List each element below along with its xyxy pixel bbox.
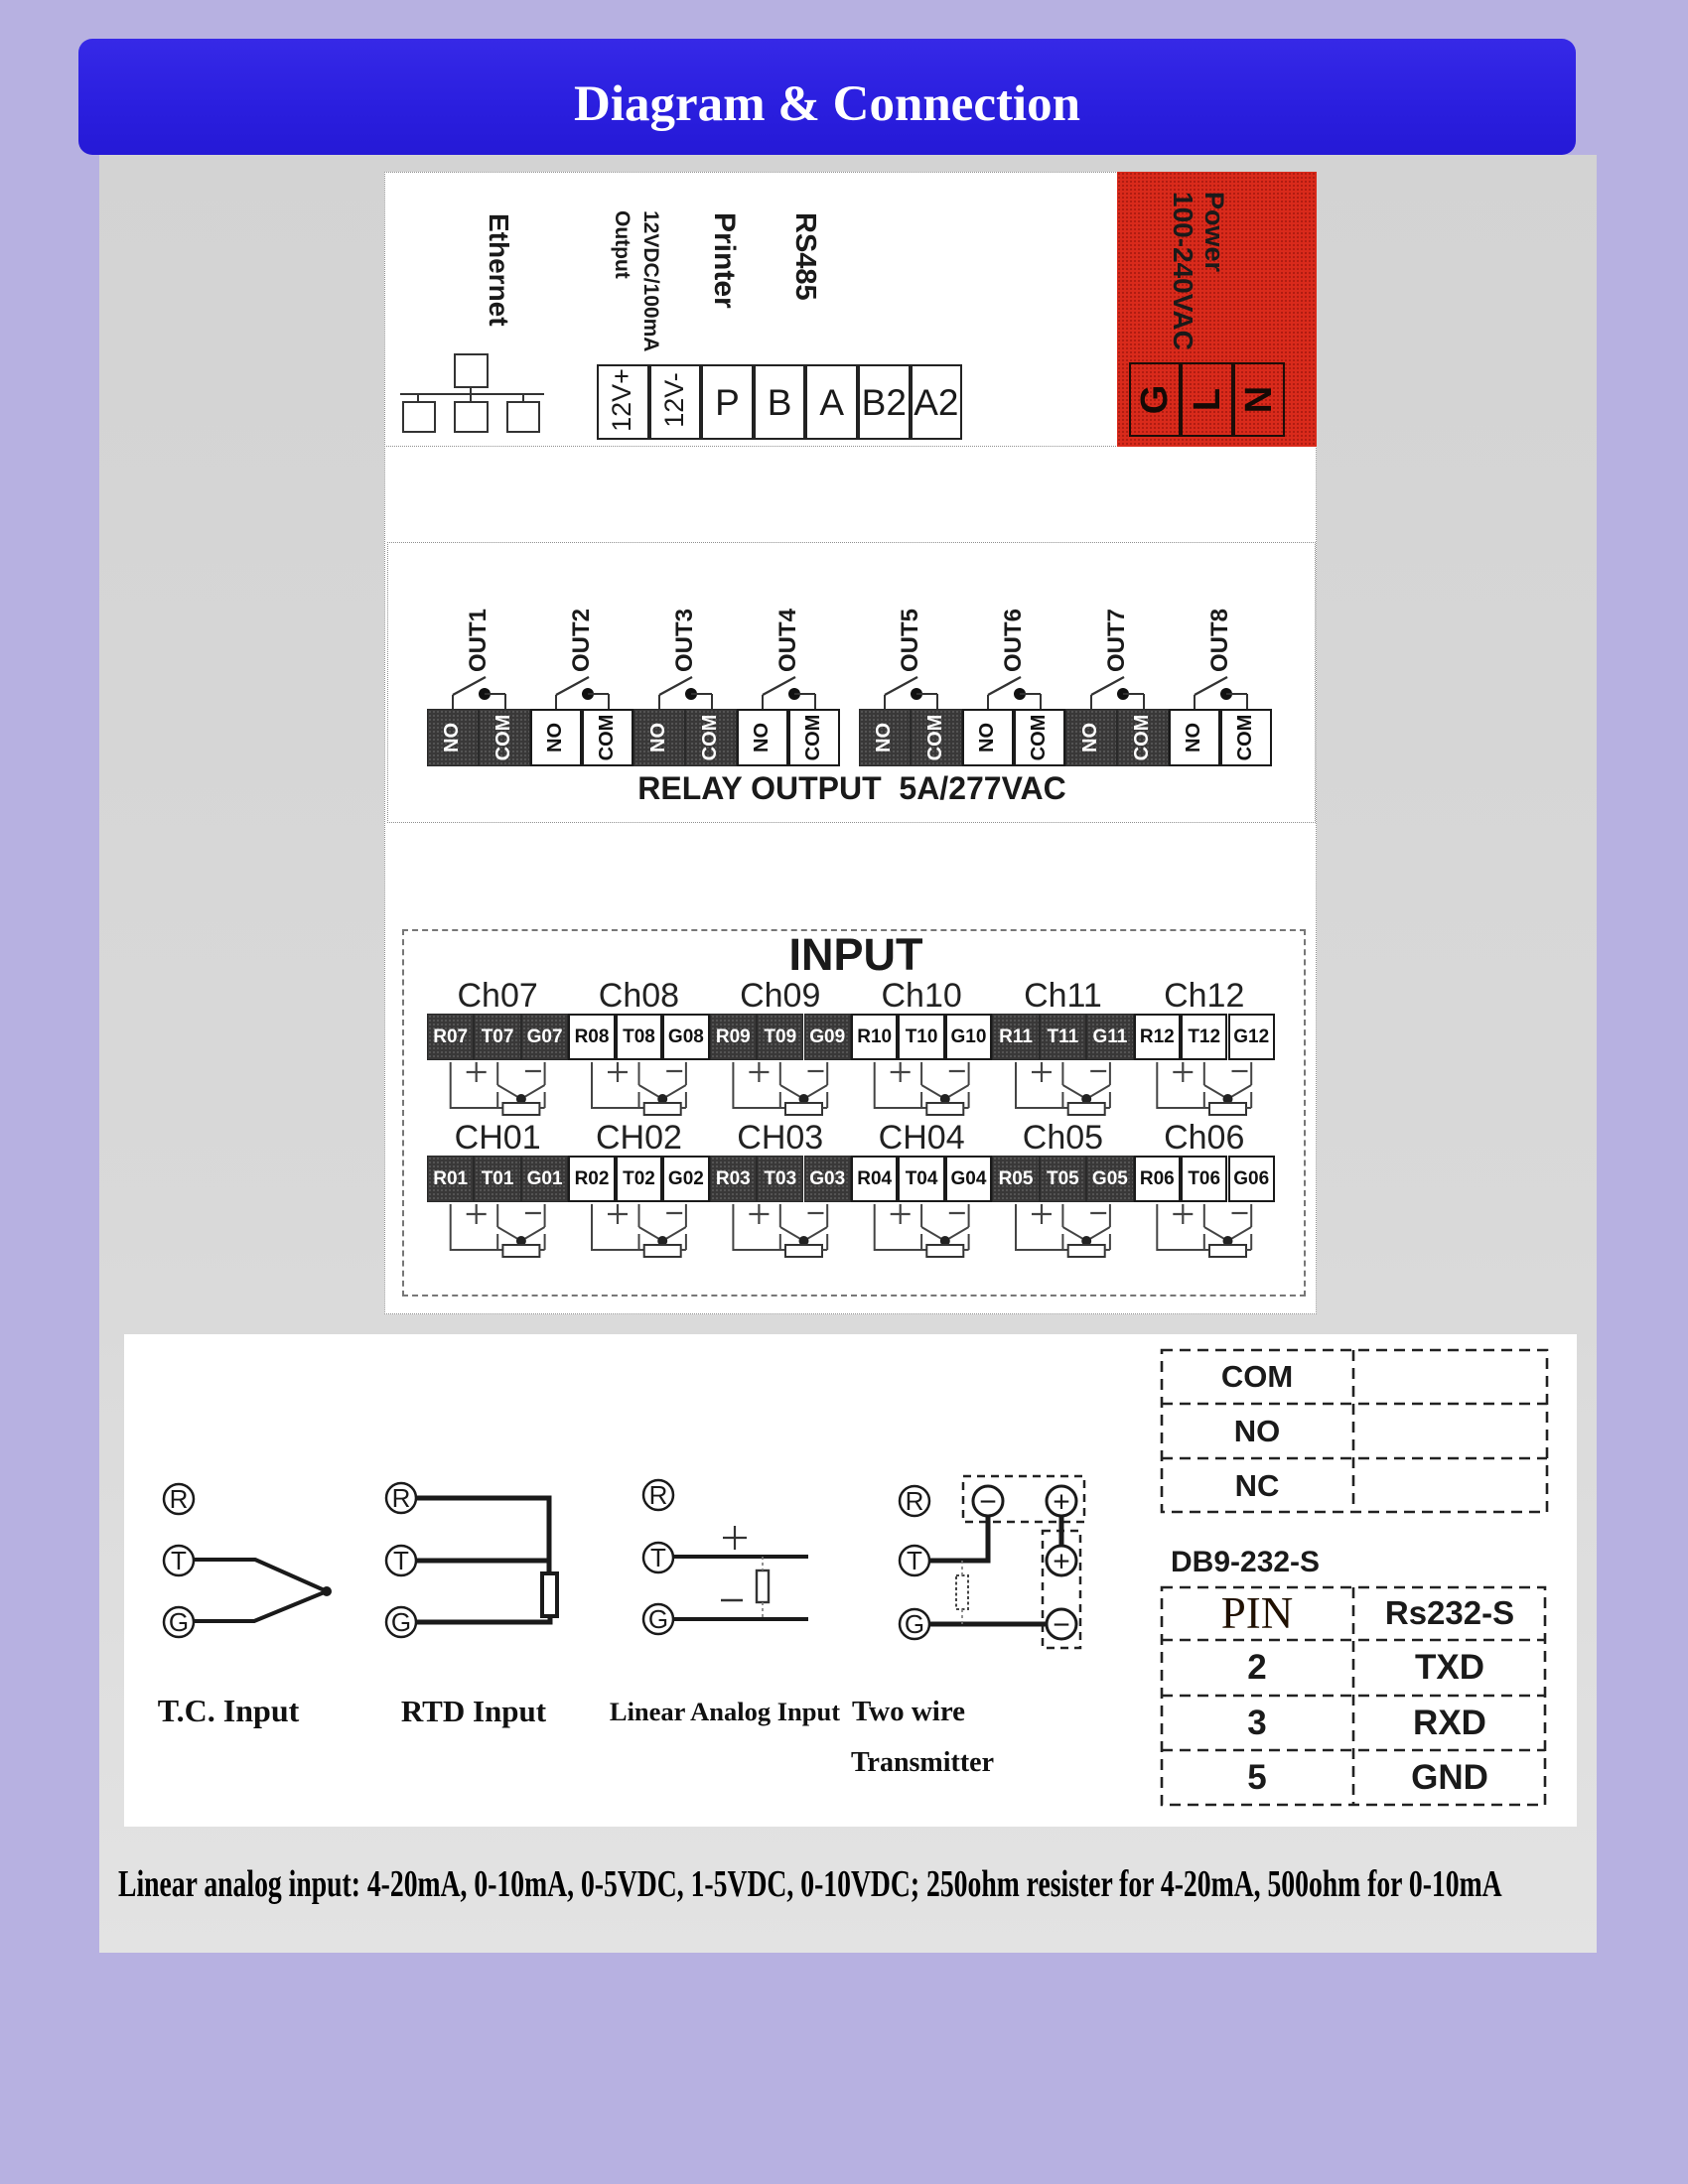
svg-text:G: G <box>905 1609 924 1639</box>
svg-text:R: R <box>906 1486 924 1516</box>
svg-text:+: + <box>1053 1486 1070 1519</box>
svg-text:−: − <box>979 1486 997 1519</box>
svg-text:−: − <box>1053 1609 1070 1642</box>
svg-text:T: T <box>907 1546 922 1575</box>
svg-text:+: + <box>1053 1546 1070 1578</box>
